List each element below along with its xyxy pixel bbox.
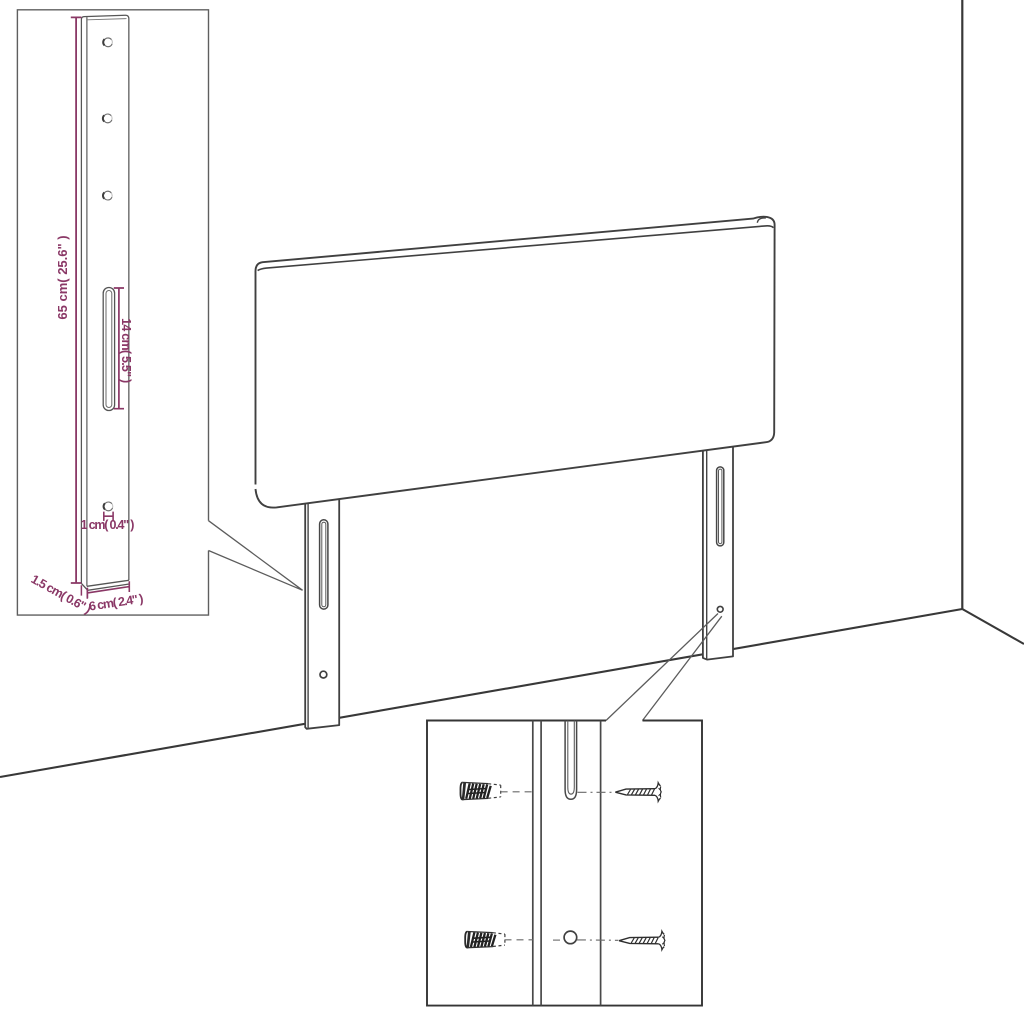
svg-text:65 cm( 25.6" ): 65 cm( 25.6" ) — [55, 235, 70, 319]
svg-text:14 cm( 5.5" ): 14 cm( 5.5" ) — [119, 318, 133, 383]
svg-text:1 cm( 0.4" ): 1 cm( 0.4" ) — [81, 518, 135, 532]
